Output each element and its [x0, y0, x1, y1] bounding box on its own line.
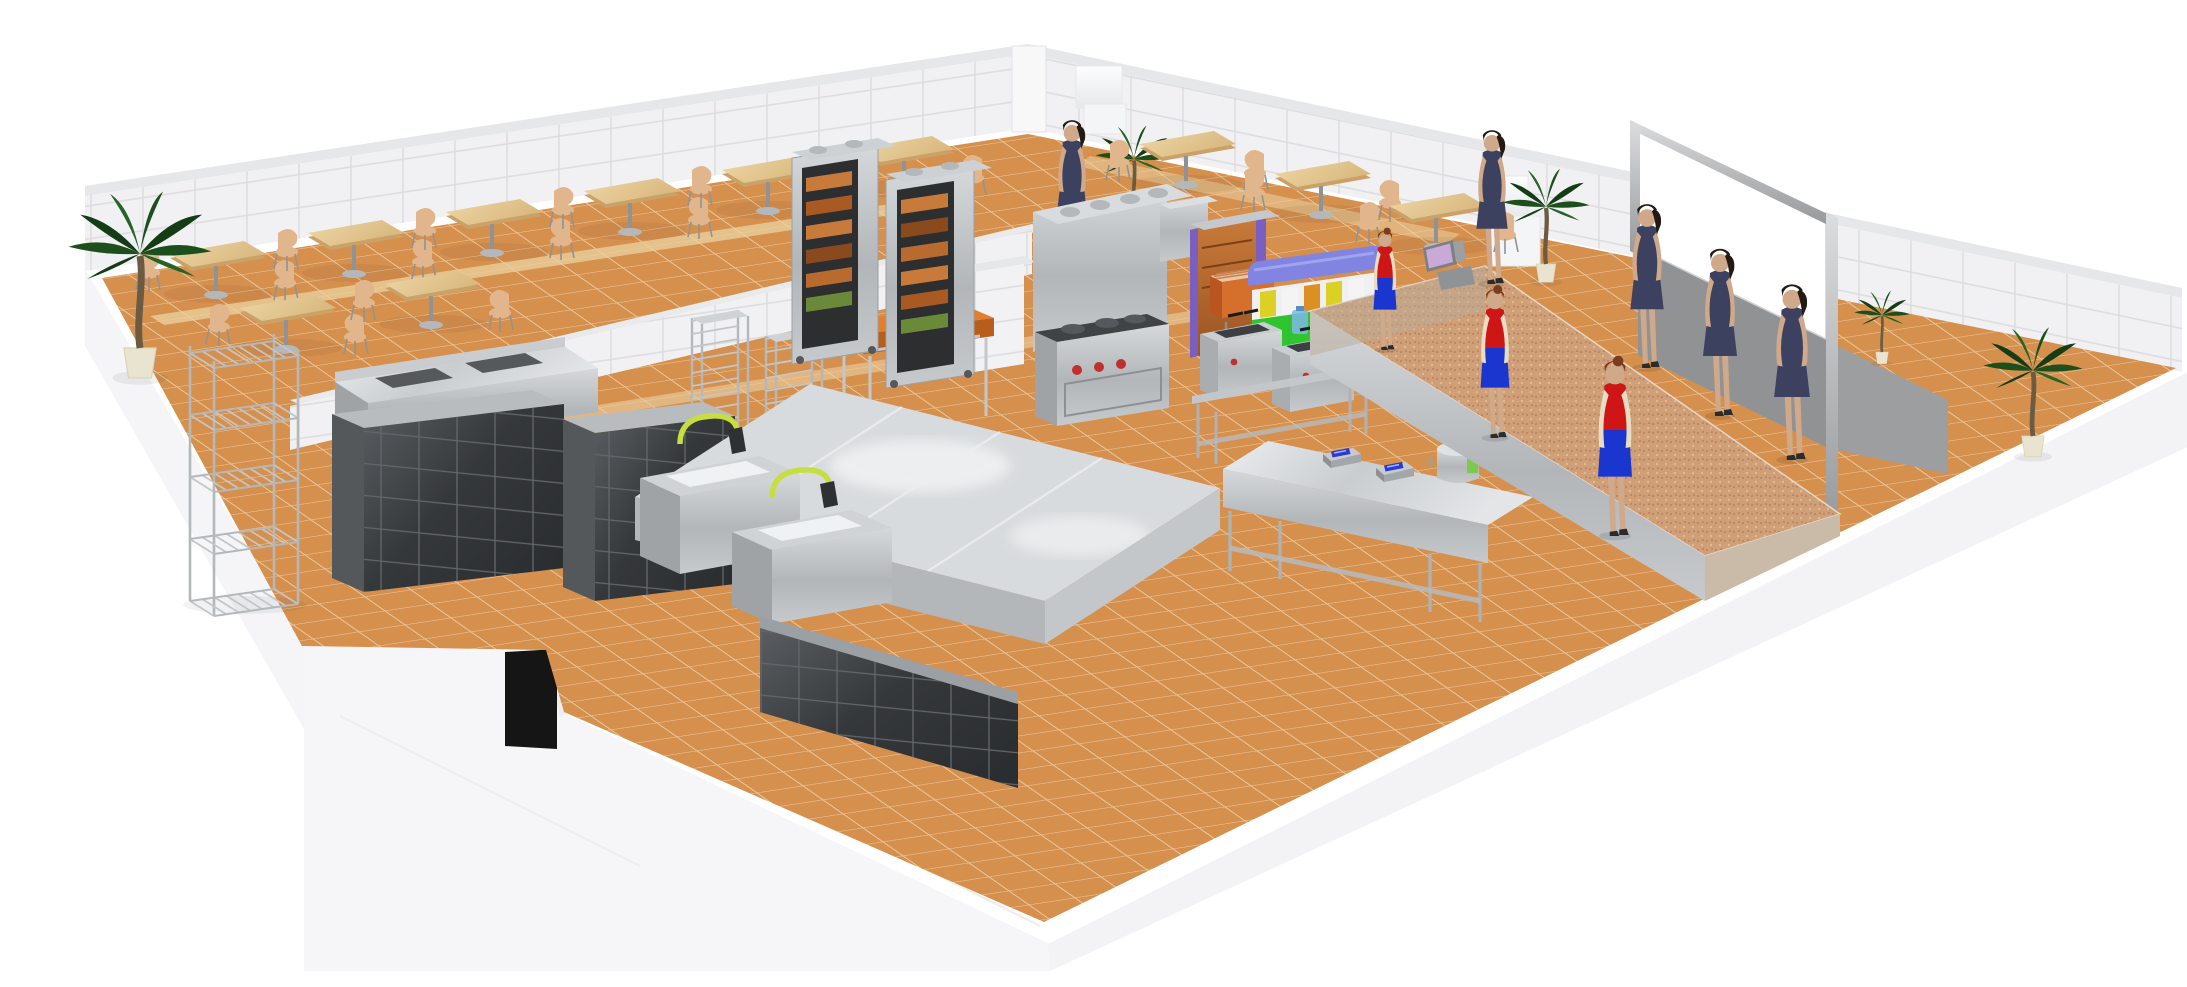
corner-column: [1012, 46, 1046, 132]
screen-frame-post: [1826, 212, 1838, 531]
cooking-range: [1035, 314, 1169, 426]
doorway-opening: [505, 649, 557, 749]
floorplan-svg: [40, 16, 2187, 971]
dark-equipment-block: [332, 390, 564, 592]
white-storage-boxes: [1076, 66, 1122, 108]
cafeteria-floorplan-render: 3D perspective render of a self-service …: [40, 16, 2187, 971]
